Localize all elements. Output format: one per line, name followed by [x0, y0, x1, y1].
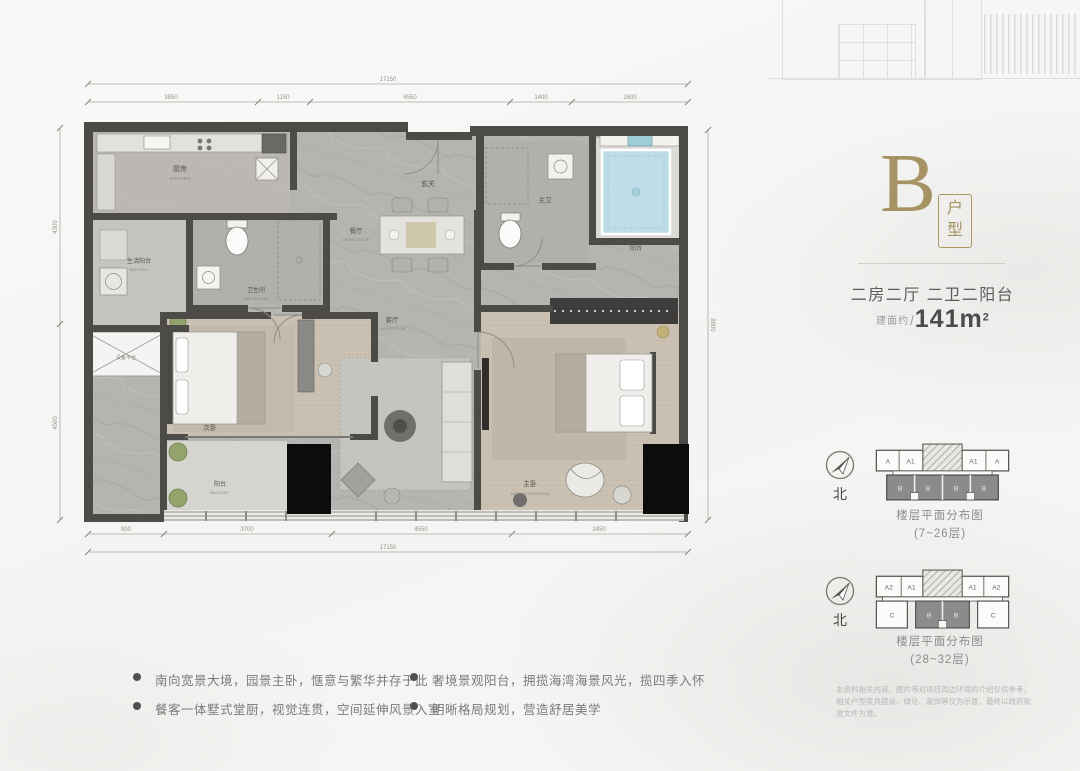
window-band	[164, 510, 684, 521]
cell-a1: A1	[907, 585, 915, 592]
cell-b1: B	[927, 613, 932, 620]
cell-c2: C	[991, 613, 996, 620]
foyer-label: 玄关	[421, 179, 435, 188]
service-balcony-label-en: BALCONY	[129, 267, 148, 272]
dim-top-seg1: 3850	[164, 95, 178, 101]
cell-b4: B	[982, 486, 987, 493]
balcony2-label: 阳台	[630, 244, 642, 252]
dim-left-seg1: 4300	[53, 220, 59, 234]
bath1-label-en: BATHROOM	[245, 296, 268, 301]
north-indicator: 北	[820, 448, 860, 506]
dim-top-seg5: 2600	[623, 95, 637, 101]
dim-bottom-seg1: 900	[121, 527, 132, 533]
dining-label: 餐厅	[350, 226, 364, 235]
living-label-en: LIVING ROOM	[379, 326, 406, 331]
feature-list-left: 南向宽景大境，园景主卧，惬意与繁华并存于此 餐客一体墅式堂厨，视觉连贯，空间延伸…	[133, 670, 441, 728]
floor-plan: 玄关 厨房 KITCHEN 生活阳台 BALCONY 设备平台 卫生间 BATH…	[40, 70, 730, 570]
dim-bottom-total: 17150	[380, 545, 397, 551]
dim-top-seg2: 1150	[277, 95, 291, 101]
distribution-diagram-1: 北 A A1 A1 A B B B B	[820, 442, 1030, 564]
feature-item: 餐客一体墅式堂厨，视觉连贯，空间延伸风景入室	[133, 699, 441, 718]
disclaimer: 本资料相关内容、图片等对项目周边环境的介绍仅供参考； 相关户型家具摆设、绿化、装…	[836, 684, 1032, 720]
cell-b1: B	[898, 486, 903, 493]
feature-list-right: 奢境景观阳台，拥揽海湾海景风光，揽四季入怀 明晰格局规划，营造舒居美学	[410, 670, 705, 728]
cell-a1: A1	[906, 459, 914, 466]
area-slash: /	[910, 313, 914, 328]
dim-bottom-seg4: 2450	[592, 527, 606, 533]
feature-item: 南向宽景大境，园景主卧，惬意与繁华并存于此	[133, 670, 441, 689]
cell-b2: B	[954, 613, 959, 620]
disclaimer-line1: 本资料相关内容、图片等对项目周边环境的介绍仅供参考；	[836, 684, 1032, 696]
cell-c1: C	[889, 613, 894, 620]
cell-a: A	[885, 459, 890, 466]
dim-bottom-seg3: 4550	[414, 527, 428, 533]
kitchen-label: 厨房	[173, 164, 187, 173]
living-room-furniture	[340, 358, 472, 504]
north-label: 北	[833, 486, 847, 502]
dim-top-total: 17150	[380, 77, 397, 83]
cell-b3: B	[954, 486, 959, 493]
north-label: 北	[833, 612, 847, 628]
service-balcony-label: 生活阳台	[127, 257, 151, 265]
dim-top-seg3: 4550	[403, 95, 417, 101]
area-line: 建面约/141m2	[845, 305, 1020, 334]
utility-block-right	[643, 444, 689, 514]
cell-a1-r: A1	[968, 585, 976, 592]
bedroom1-label: 次卧	[203, 423, 217, 432]
cell-a1-r: A1	[969, 459, 977, 466]
cell-a2: A2	[885, 585, 893, 592]
living-label: 客厅	[386, 315, 400, 324]
layout-description: 二房二厅 二卫二阳台	[845, 281, 1020, 305]
cell-a-r: A	[995, 459, 1000, 466]
dim-top-seg4: 1400	[534, 95, 548, 101]
equipment-platform-icon	[86, 332, 166, 376]
area-label: 建面约	[876, 316, 909, 327]
building-schematic-2: A2 A1 A1 A2 C B B C	[870, 568, 1015, 630]
cell-b2: B	[926, 486, 931, 493]
building-schematic-1: A A1 A1 A B B B B	[870, 442, 1015, 504]
distribution-caption-1: 楼层平面分布图 (7~26层)	[850, 508, 1030, 544]
feature-item: 明晰格局规划，营造舒居美学	[410, 699, 705, 718]
unit-type-box: 户型	[938, 194, 972, 248]
distribution-diagram-2: 北 A2 A1 A1 A2 C B B C	[820, 568, 1030, 690]
master-bath-label: 主卫	[539, 195, 553, 204]
elevation-sketch-decoration	[768, 0, 1080, 96]
unit-type-letter: B	[880, 142, 936, 226]
dim-right-total: 8800	[709, 318, 715, 332]
dim-left-seg2: 4500	[53, 416, 59, 430]
bathtub-icon	[600, 134, 679, 234]
dining-label-en: DINING ROOM	[342, 237, 370, 242]
dim-bottom-seg2: 3700	[240, 527, 254, 533]
feature-item: 奢境景观阳台，拥揽海湾海景风光，揽四季入怀	[410, 670, 705, 689]
master-bedroom-label: 主卧	[523, 479, 537, 488]
utility-block-left	[287, 444, 331, 514]
area-value: 141m	[915, 305, 983, 333]
equipment-label: 设备平台	[116, 354, 136, 361]
kitchen-label-en: KITCHEN	[170, 176, 190, 181]
balcony1-label: 阳台	[214, 480, 226, 488]
bath1-label: 卫生间	[247, 286, 265, 294]
distribution-caption-2: 楼层平面分布图 (28~32层)	[850, 634, 1030, 670]
area-sup: 2	[983, 312, 989, 324]
master-bedroom-label-en: MASTER BEDROOM	[511, 491, 549, 496]
north-indicator: 北	[820, 574, 860, 632]
disclaimer-line2: 相关户型家具摆设、绿化、装饰等仅为示意，最终以政府批准文件为准。	[836, 696, 1032, 720]
balcony1-label-en: BALCONY	[210, 490, 229, 495]
divider	[858, 263, 1006, 264]
cell-a2-r: A2	[992, 585, 1000, 592]
